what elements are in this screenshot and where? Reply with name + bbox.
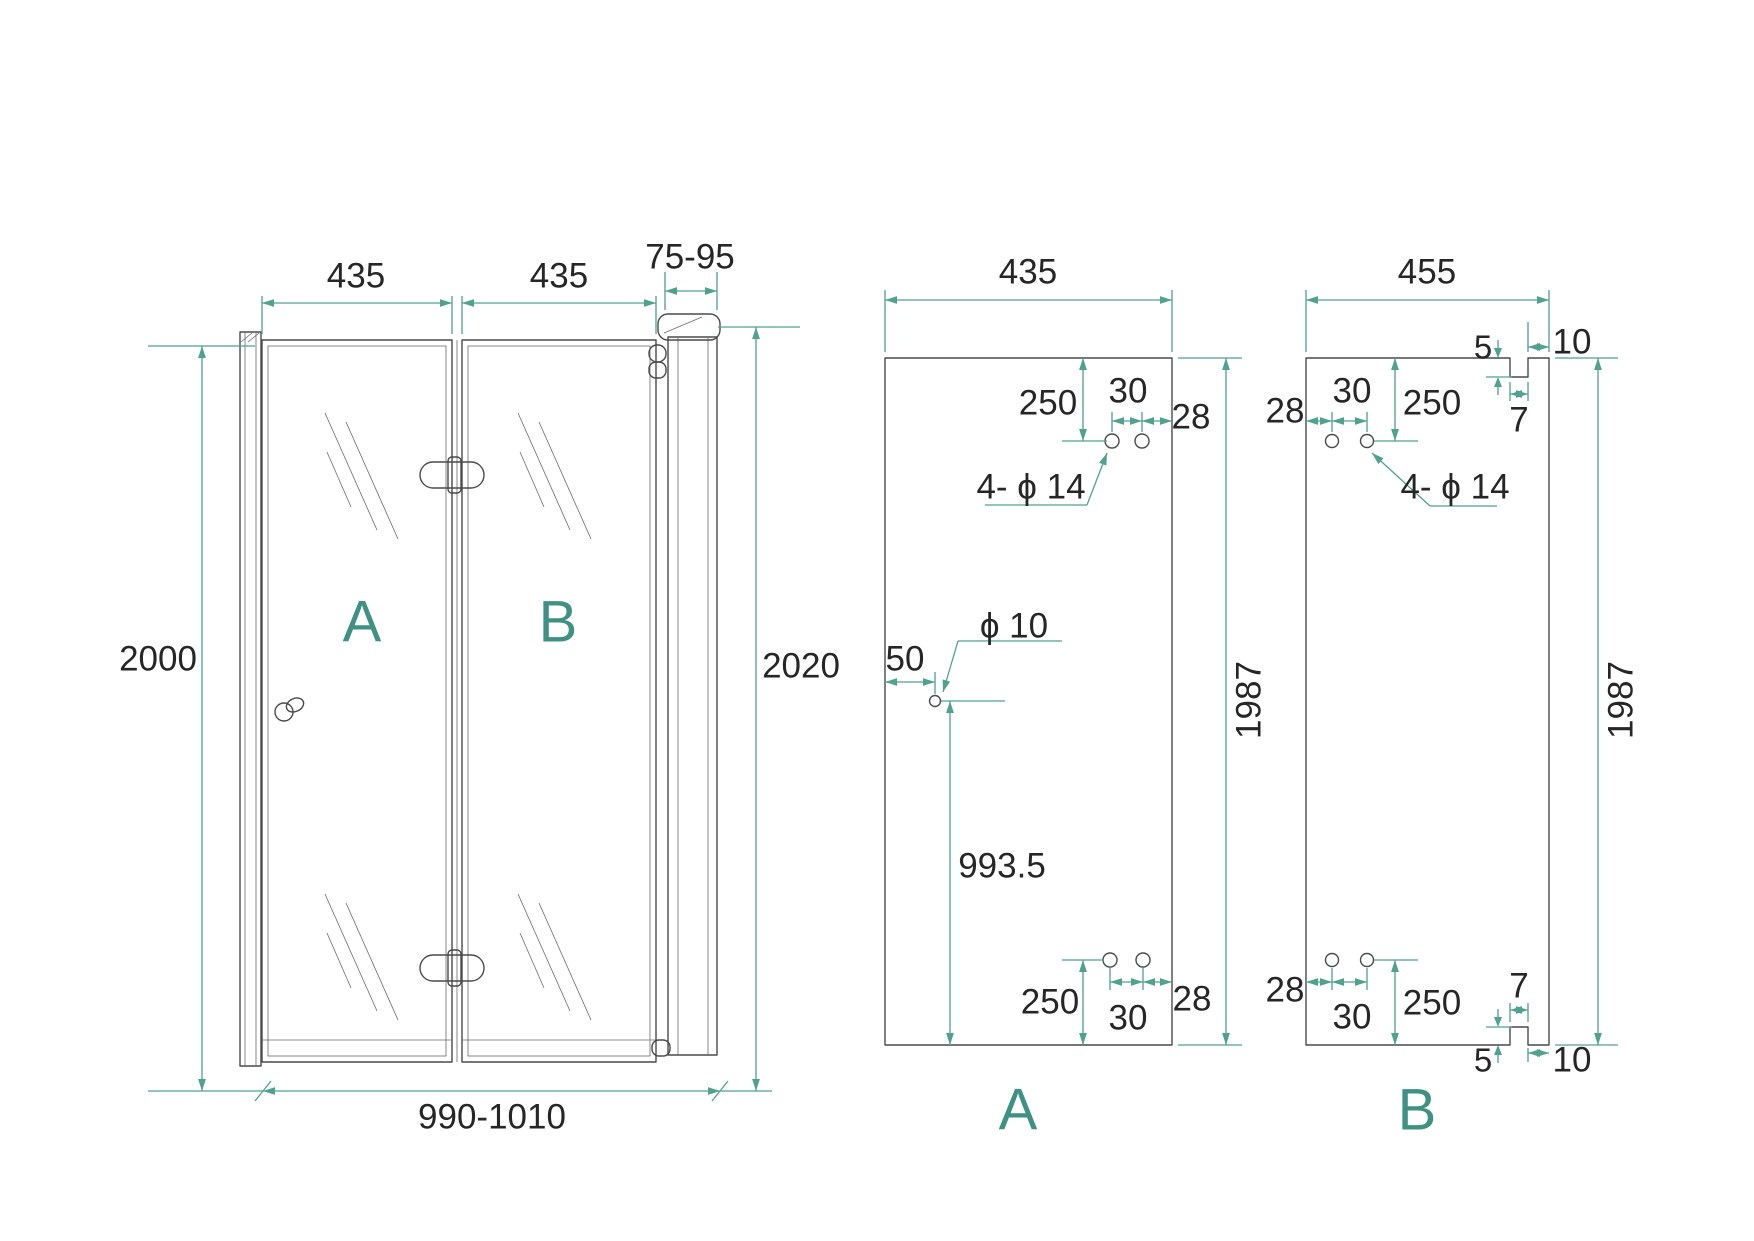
door-knob <box>275 695 306 721</box>
dim-panel-a-width: 435 <box>262 257 452 335</box>
panel-a-bottom-hole-left <box>1103 953 1117 967</box>
panel-b-glass <box>462 340 656 1062</box>
door-panel-b <box>462 340 656 1062</box>
dim-height-2000: 2000 <box>119 346 255 1091</box>
dim-text-b-bottom-notch-width: 7 <box>1509 967 1528 1006</box>
panel-b-bottom-hole-right <box>1361 954 1374 967</box>
dim-text-a-top-pitch: 30 <box>1109 372 1148 411</box>
panel-b-top-hole-left <box>1326 435 1339 448</box>
dim-a-top-holes: 250 30 28 4- ϕ 14 <box>976 358 1210 507</box>
dim-text-panel-b-width: 435 <box>530 257 588 296</box>
dim-b-top-holes: 28 30 250 4- ϕ 14 <box>1266 358 1510 507</box>
dim-text-b-bottom-offset: 250 <box>1403 984 1461 1023</box>
dim-b-height: 1987 <box>1555 358 1641 1045</box>
panel-b-bottom-hole-left <box>1326 954 1339 967</box>
dim-b-width: 455 <box>1306 253 1549 353</box>
dim-text-a-height: 1987 <box>1230 661 1269 739</box>
panel-a-detail-label: A <box>999 1078 1038 1143</box>
dim-b-bottom-notch: 7 5 10 <box>1474 967 1592 1080</box>
dim-total-width: 990-1010 <box>148 1081 772 1137</box>
dim-b-bottom-holes: 28 30 250 <box>1266 960 1462 1045</box>
dim-text-wall-profile: 75-95 <box>645 238 735 277</box>
panel-a-handle-hole <box>930 696 941 707</box>
dim-text-b-top-notch-depth: 5 <box>1474 329 1492 366</box>
panel-b-outline <box>1306 358 1549 1045</box>
dim-text-b-top-notch-edge: 10 <box>1553 323 1592 362</box>
panel-b-top-hole-right <box>1361 435 1374 448</box>
panel-b-detail-label: B <box>1398 1078 1437 1143</box>
hatch-mark <box>241 333 252 342</box>
dim-text-a-bottom-pitch: 30 <box>1109 999 1148 1038</box>
hatch-mark <box>248 333 259 342</box>
label-a-holes-diameter: 4- ϕ 14 <box>976 468 1085 507</box>
dim-text-b-bottom-notch-edge: 10 <box>1553 1041 1592 1080</box>
panel-a-top-hole-right <box>1135 434 1149 448</box>
dim-text-a-bottom-edge: 28 <box>1173 980 1212 1019</box>
dim-text-b-top-pitch: 30 <box>1333 372 1372 411</box>
profile-top-cap <box>658 314 720 340</box>
left-profile-body <box>240 332 261 1066</box>
dim-text-height-left: 2000 <box>119 640 197 679</box>
assembled-view: 435 435 75-95 2000 2020 <box>119 238 840 1137</box>
glass-shine-marks <box>325 413 591 1020</box>
dim-text-b-top-offset: 250 <box>1403 384 1461 423</box>
panel-a-top-hole-left <box>1105 434 1119 448</box>
dim-text-b-top-notch-width: 7 <box>1509 401 1528 440</box>
dim-text-b-bottom-edge: 28 <box>1266 971 1305 1010</box>
dim-text-b-top-edge: 28 <box>1266 392 1305 431</box>
right-wall-profile <box>652 314 720 1056</box>
door-panel-a <box>262 340 452 1062</box>
panel-b-detail-view: 455 1987 5 10 7 28 <box>1266 253 1641 1143</box>
dim-text-b-width: 455 <box>1398 253 1456 292</box>
panel-a-glass <box>262 340 452 1062</box>
dim-a-bottom-holes: 250 30 28 <box>1021 960 1212 1045</box>
leader-arrow <box>943 641 958 692</box>
left-wall-profile <box>240 332 261 1066</box>
dim-text-b-bottom-notch-depth: 5 <box>1474 1042 1492 1079</box>
dim-text-a-width: 435 <box>999 253 1057 292</box>
dim-text-a-top-offset: 250 <box>1019 384 1077 423</box>
panel-b-glass-inner <box>468 346 650 1056</box>
dim-text-b-bottom-pitch: 30 <box>1333 998 1372 1037</box>
dim-b-top-notch: 5 10 7 <box>1474 322 1592 440</box>
dim-text-a-handle-edge: 50 <box>886 640 925 679</box>
dim-text-a-bottom-offset: 250 <box>1021 983 1079 1022</box>
drawing-canvas: 435 435 75-95 2000 2020 <box>0 0 1754 1241</box>
panel-a-outline <box>885 358 1172 1045</box>
dim-wall-profile-range: 75-95 <box>645 238 735 311</box>
assembled-panel-b-label: B <box>539 590 578 655</box>
label-b-holes-diameter: 4- ϕ 14 <box>1400 468 1509 507</box>
dim-text-a-top-edge: 28 <box>1172 398 1211 437</box>
dim-height-2020: 2020 <box>718 327 840 1091</box>
technical-drawing-page: 435 435 75-95 2000 2020 <box>0 0 1754 1241</box>
dim-text-a-handle-height: 993.5 <box>958 847 1046 886</box>
label-a-handle-diameter: ϕ 10 <box>980 607 1048 646</box>
dim-text-panel-a-width: 435 <box>327 257 385 296</box>
panel-a-detail-view: 435 1987 250 30 28 4- ϕ 14 <box>885 253 1269 1143</box>
panel-a-bottom-hole-right <box>1136 953 1150 967</box>
dim-panel-b-width: 435 <box>462 257 656 335</box>
dim-a-height: 1987 <box>1178 358 1269 1045</box>
leader-arrow <box>1087 453 1107 505</box>
dim-a-handle-hole: 50 ϕ 10 993.5 <box>885 607 1062 1046</box>
assembled-panel-a-label: A <box>343 590 382 655</box>
dim-text-height-right: 2020 <box>762 647 840 686</box>
wall-hinge-knuckles <box>649 345 666 378</box>
dim-text-total-width: 990-1010 <box>418 1098 566 1137</box>
dim-text-b-height: 1987 <box>1602 661 1641 739</box>
dim-a-width: 435 <box>885 253 1172 353</box>
panel-a-glass-inner <box>268 346 446 1056</box>
